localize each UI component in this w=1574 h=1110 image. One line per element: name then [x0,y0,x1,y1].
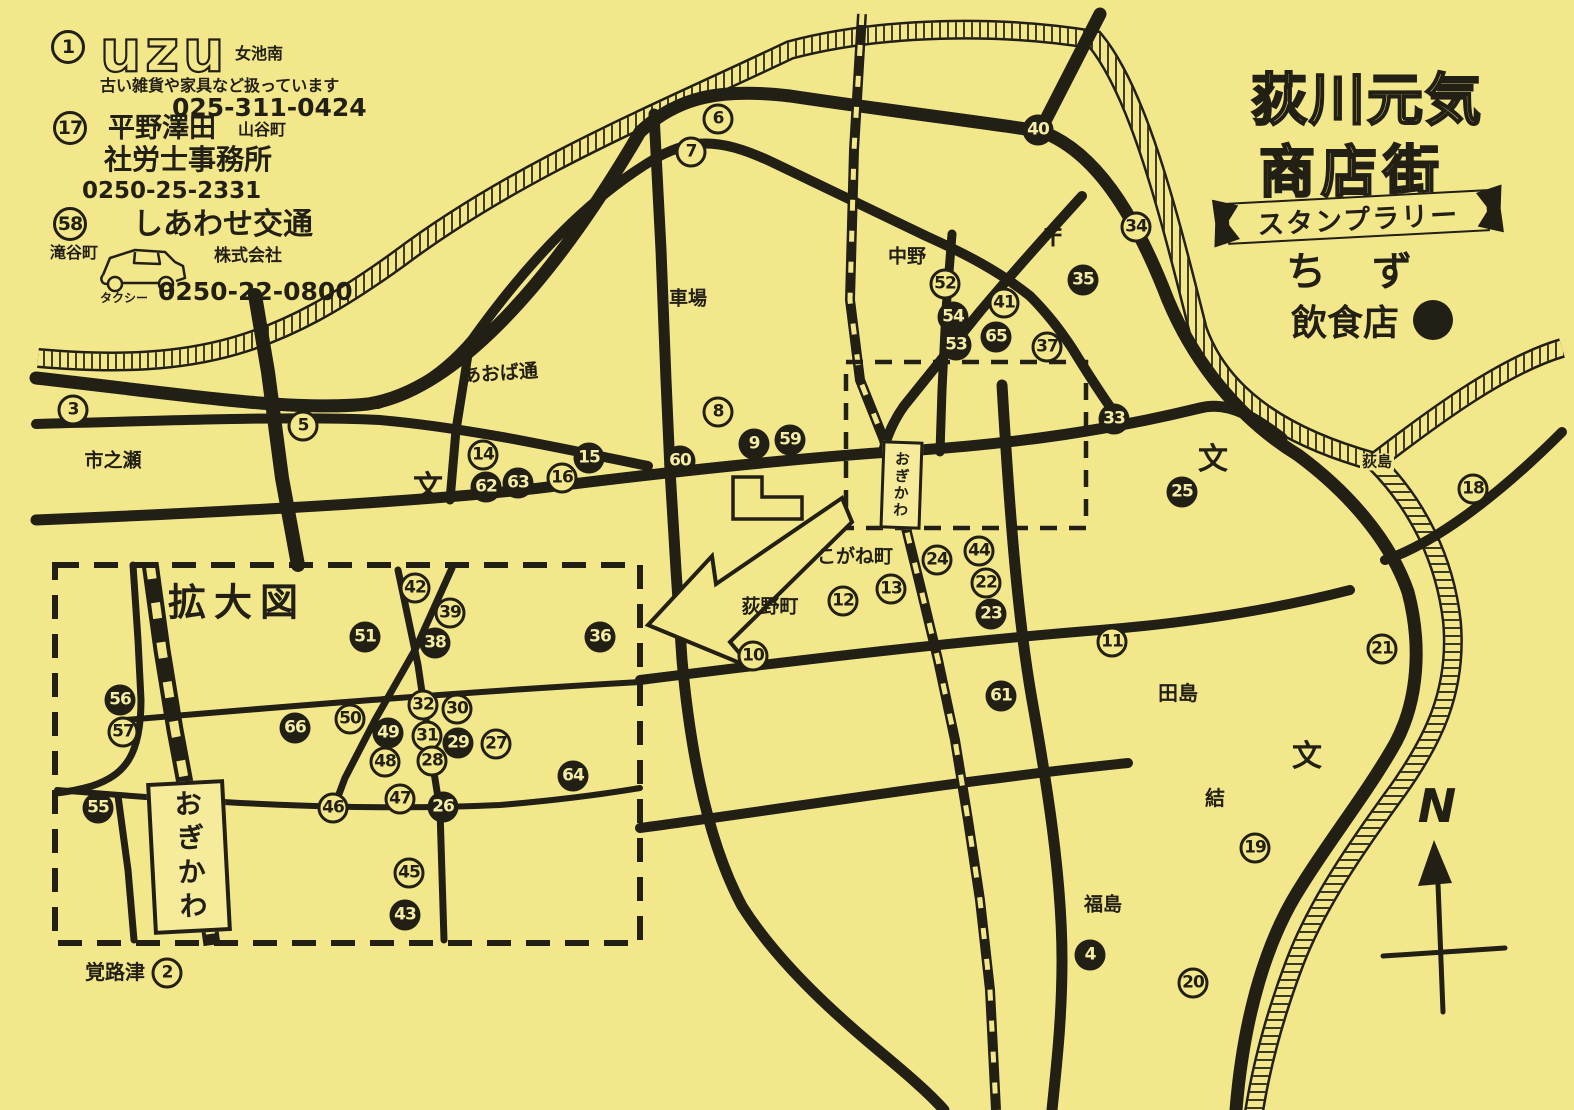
post-office-icon: 〒 [1041,226,1065,250]
stamp-point-66: 66 [280,713,311,744]
stamp-point-39: 39 [435,598,466,629]
stamp-point-26: 26 [428,792,459,823]
stamp-point-41: 41 [989,288,1020,319]
stamp-point-7: 7 [676,137,707,168]
stamp-point-18: 18 [1458,474,1489,505]
river-band-right [1375,348,1562,462]
compass [1383,840,1505,1012]
stamp-point-25: 25 [1167,477,1198,508]
stamp-point-35: 35 [1068,265,1099,296]
stamp-point-36: 36 [585,622,616,653]
shiawase-phone: 0250-22-0800 [158,279,353,304]
stamp-point-61: 61 [986,681,1017,712]
restaurant-dot-icon [1413,300,1453,340]
compass-arrowhead [1418,840,1452,886]
station-sign-ogikawa-inset: おぎかわ [146,779,232,935]
stamp-point-48: 48 [370,747,401,778]
stamp-point-44: 44 [964,536,995,567]
map-title-line1: 荻川元気 [1251,56,1483,137]
hirano-area: 山谷町 [238,122,286,138]
stamp-point-45: 45 [394,858,425,889]
uzu-logo: uzu [100,22,228,80]
stamp-point-21: 21 [1367,634,1398,665]
building-outline [733,477,802,519]
place-label-10: 荻島 [1360,454,1394,471]
stamp-point-5: 5 [288,411,319,442]
stamp-point-13: 13 [876,574,907,605]
stamp-point-22: 22 [971,568,1002,599]
stamp-point-58: 58 [53,207,87,241]
inset-road-left-lower [118,796,134,940]
stamp-point-33: 33 [1099,404,1130,435]
place-label-8: 結 [1205,788,1225,808]
uzu-description: 古い雑貨や家具など扱っています [100,78,339,94]
stamp-point-51: 51 [350,622,381,653]
stamp-point-8: 8 [703,397,734,428]
stamp-point-57: 57 [108,717,139,748]
stamp-point-27: 27 [481,729,512,760]
stamp-point-40: 40 [1023,115,1054,146]
stamp-point-2: 2 [152,958,183,989]
place-label-2: 車場 [669,290,707,309]
stamp-point-62: 62 [471,472,502,503]
stamp-point-20: 20 [1178,968,1209,999]
place-label-11: 覚路津 [85,962,145,982]
stamp-point-3: 3 [58,395,89,426]
stamp-point-17: 17 [53,111,87,145]
stamp-point-56: 56 [105,685,136,716]
road-v-fukushima [1002,385,1062,1110]
stamp-point-30: 30 [442,694,473,725]
place-label-5: こがね町 [817,548,893,567]
inset-frame [55,565,640,943]
stamp-point-43: 43 [390,900,421,931]
stamp-point-24: 24 [922,545,953,576]
legend-label: 飲食店 [1291,294,1399,346]
stamp-point-60: 60 [665,446,696,477]
stamp-point-38: 38 [420,628,451,659]
map-subtitle: ちず [1266,239,1458,297]
stamp-point-19: 19 [1240,833,1271,864]
stamp-point-54: 54 [938,302,969,333]
stamp-point-6: 6 [703,104,734,135]
place-label-3: 中野 [888,248,926,267]
legend: 飲食店 [1291,294,1453,346]
shiawase-vehicle: タクシー [100,292,148,304]
stamp-point-1: 1 [51,30,85,64]
stamp-point-52: 52 [930,269,961,300]
stamp-point-28: 28 [417,746,448,777]
stamp-point-15: 15 [574,443,605,474]
inset-road-left [56,565,141,793]
compass-north-label: N [1418,779,1457,833]
place-label-6: 荻野町 [741,598,798,617]
shiawase-suffix: 株式会社 [214,248,282,265]
hand-drawn-stamp-rally-map: 荻川元気 商店街 スタンプラリー ちず 飲食店 uzu 女池南 古い雑貨や家具な… [0,0,1574,1110]
stamp-point-12: 12 [828,586,859,617]
shiawase-area: 滝谷町 [50,245,98,261]
stamp-point-4: 4 [1075,940,1106,971]
stamp-point-49: 49 [373,718,404,749]
station-sign-ogikawa-main: おぎかわ [879,440,923,529]
school-icon: 文 [1198,445,1228,475]
stamp-point-55: 55 [83,793,114,824]
stamp-point-16: 16 [547,463,578,494]
stamp-point-23: 23 [976,599,1007,630]
stamp-point-46: 46 [318,793,349,824]
place-label-9: 福島 [1084,896,1122,915]
stamp-point-50: 50 [335,704,366,735]
stamp-point-10: 10 [738,641,769,672]
stamp-point-42: 42 [400,573,431,604]
stamp-point-14: 14 [468,440,499,471]
school-icon: 文 [1292,742,1322,772]
stamp-point-11: 11 [1097,627,1128,658]
stamp-point-63: 63 [503,468,534,499]
stamp-point-37: 37 [1032,332,1063,363]
school-icon: 文 [413,473,443,503]
hirano-office: 社労士事務所 [104,146,272,174]
uzu-area: 女池南 [235,46,283,62]
stamp-point-65: 65 [981,322,1012,353]
inset-title: 拡大図 [168,572,306,627]
stamp-point-32: 32 [408,690,439,721]
stamp-point-59: 59 [775,425,806,456]
hirano-name: 平野澤田 [108,115,216,142]
place-label-1: あおば通 [461,362,538,386]
stamp-point-64: 64 [558,761,589,792]
stamp-point-9: 9 [739,429,770,460]
stamp-point-34: 34 [1121,212,1152,243]
place-label-0: 市之瀬 [84,452,141,471]
stamp-point-29: 29 [443,728,474,759]
place-label-7: 田島 [1158,683,1198,703]
stamp-point-53: 53 [941,330,972,361]
hirano-phone: 0250-25-2331 [82,180,261,203]
inset-road-h2 [57,788,640,807]
shiawase-name: しあわせ交通 [133,210,313,240]
stamp-point-47: 47 [385,784,416,815]
